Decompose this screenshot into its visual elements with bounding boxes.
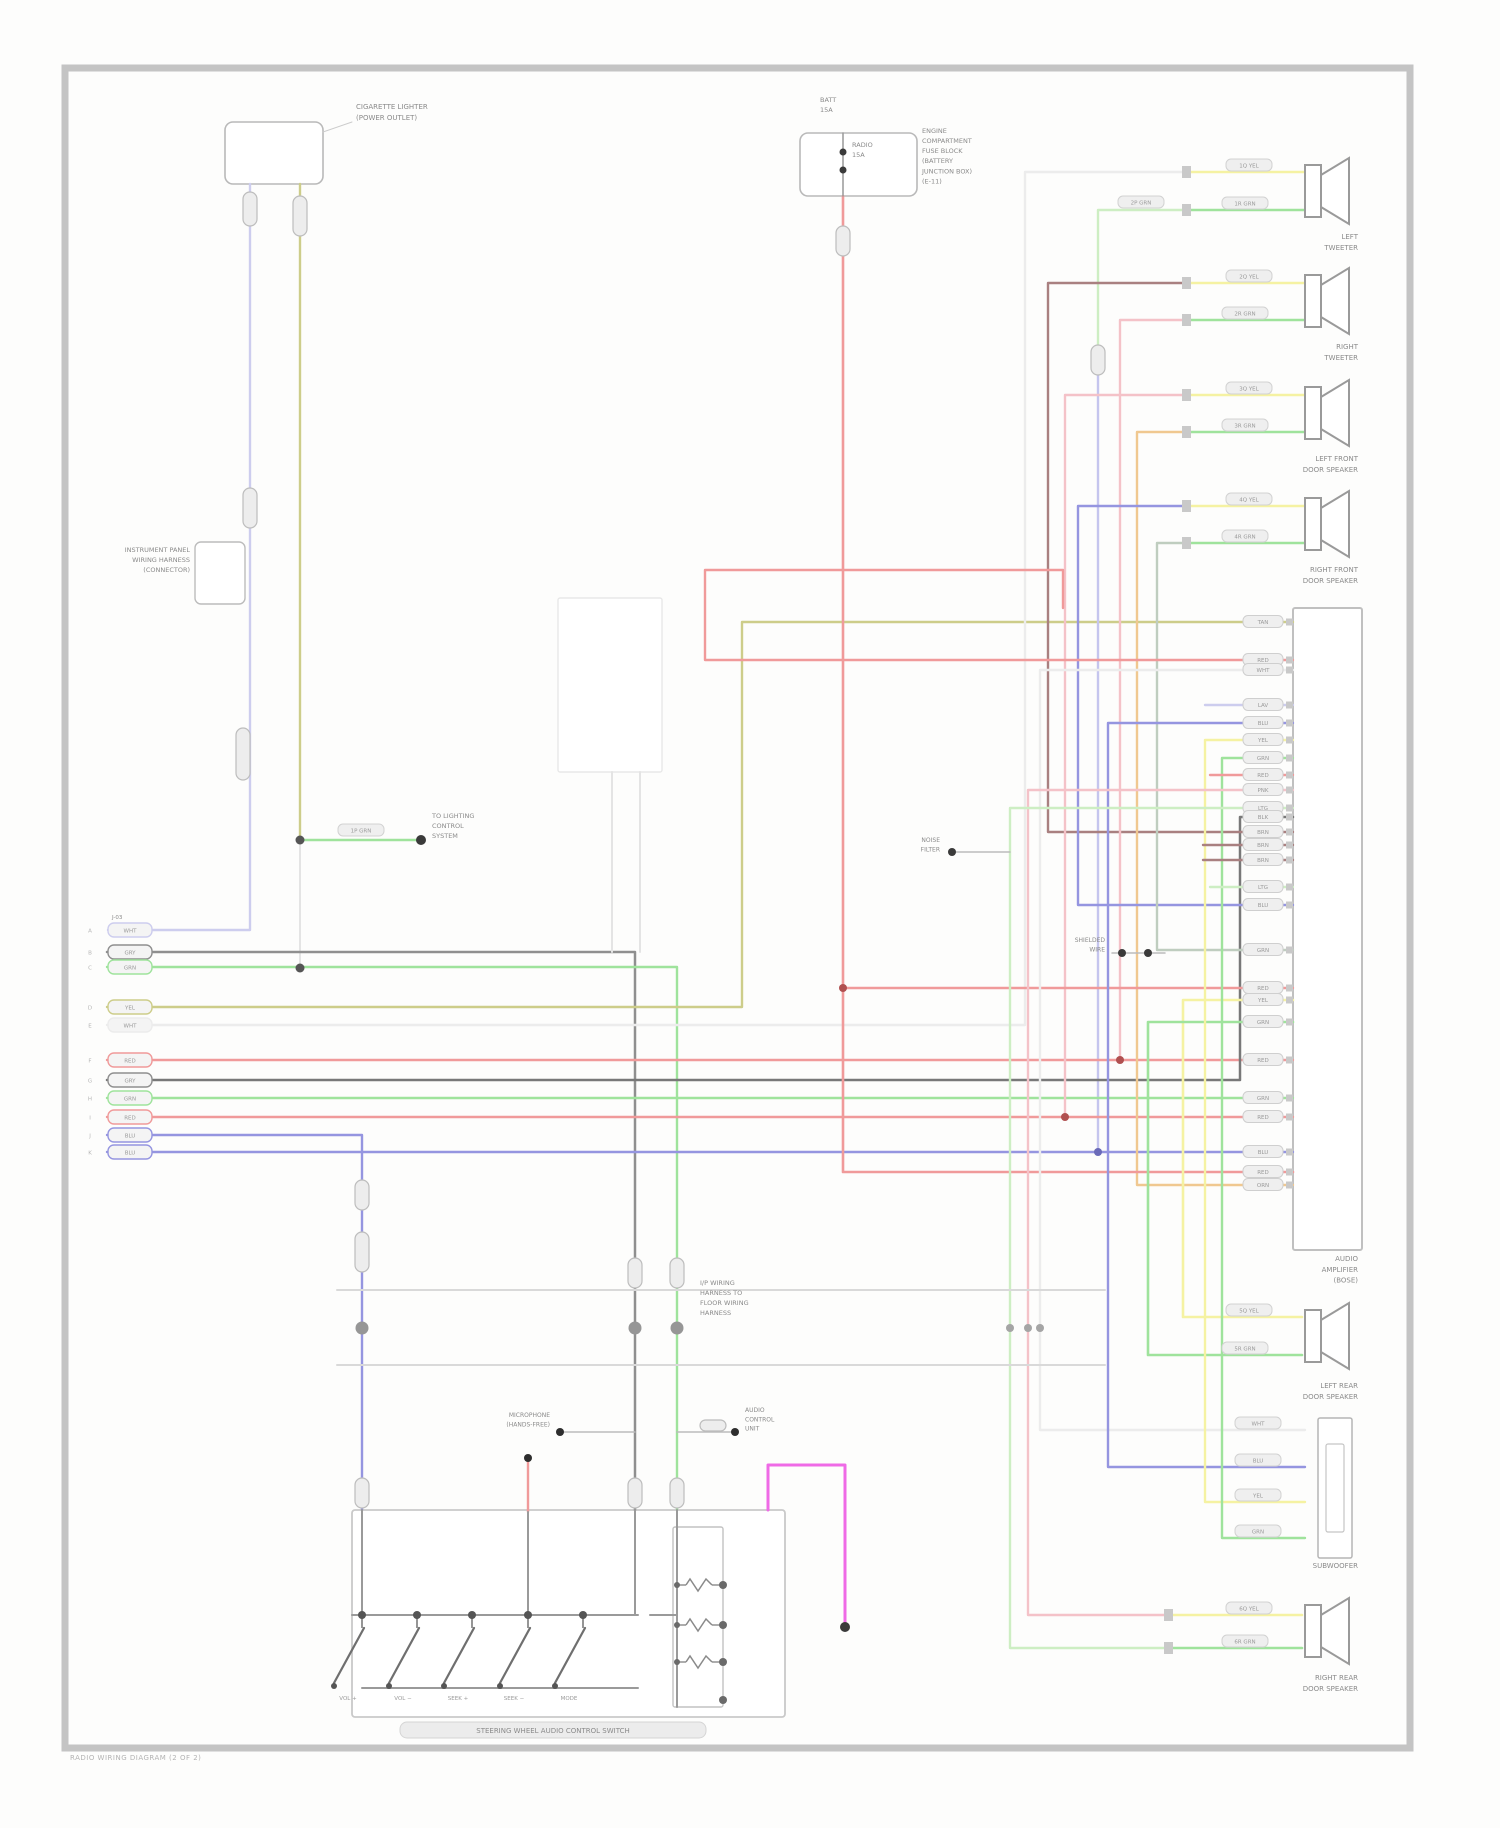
connector-stub-mark <box>1182 166 1191 178</box>
bus-stub-code: BLU <box>125 1151 136 1157</box>
connector-stub-mark <box>1182 389 1191 401</box>
wire-tag-code: RED <box>1257 773 1269 779</box>
junction-dot <box>1144 949 1152 957</box>
inline-connector-capsule <box>243 192 257 226</box>
switch-contact-dot <box>331 1683 337 1689</box>
inline-connector-capsule <box>1091 345 1105 375</box>
amp-pin <box>1286 842 1293 849</box>
box-caption-text: STEERING WHEEL AUDIO CONTROL SWITCH <box>476 1727 630 1735</box>
junction-dot <box>629 1322 642 1335</box>
inline-connector-capsule <box>628 1478 642 1508</box>
wire-tag-code: 2R GRN <box>1234 312 1255 318</box>
wire-tag-code: RED <box>1257 986 1269 992</box>
amp-pin <box>1286 1149 1293 1156</box>
inline-connector-capsule <box>670 1478 684 1508</box>
switch-contact-dot <box>579 1611 587 1619</box>
inline-connector-capsule <box>355 1478 369 1508</box>
resistor-node-dot <box>719 1581 727 1589</box>
amp-pin <box>1286 902 1293 909</box>
amp-pin <box>1286 997 1293 1004</box>
switch-contact-dot <box>468 1611 476 1619</box>
junction-dot <box>356 1322 369 1335</box>
lighting-system-label: TO LIGHTINGCONTROLSYSTEM <box>431 812 474 840</box>
junction-dot <box>524 1454 532 1462</box>
amp-pin <box>1286 619 1293 626</box>
amp-pin <box>1286 1182 1293 1189</box>
lf-door-speaker-icon <box>1305 387 1321 439</box>
left-tweeter-minus-feed <box>1098 210 1186 352</box>
switch-label: MODE <box>561 1696 578 1702</box>
resistor-node-dot <box>674 1659 680 1665</box>
switch-contact-dot <box>358 1611 366 1619</box>
bus-stub-code: GRY <box>124 1079 136 1085</box>
wire-tag-code: GRN <box>1257 1020 1269 1026</box>
resistor-node-dot <box>719 1658 727 1666</box>
junction-dot <box>839 984 847 992</box>
inline-connector-capsule <box>628 1258 642 1288</box>
fuse-top-label: BATT15A <box>820 96 836 114</box>
junction-dot <box>1006 1324 1014 1332</box>
harness-group-outline <box>558 598 662 772</box>
right-tweeter-horn-icon <box>1321 268 1349 334</box>
switch-contact-dot <box>497 1683 503 1689</box>
wire-tag-code: LAV <box>1258 703 1269 709</box>
page-footer: RADIO WIRING DIAGRAM (2 OF 2) <box>70 1754 201 1762</box>
junction-dot <box>1094 1148 1102 1156</box>
switch-label: VOL − <box>394 1696 412 1702</box>
rr-door-speaker-horn-icon <box>1321 1598 1349 1664</box>
wire-tag-code: 5R GRN <box>1234 1347 1255 1353</box>
bus-tick-label: D <box>88 1006 92 1012</box>
junction-dot <box>1061 1113 1069 1121</box>
amp-pin <box>1286 857 1293 864</box>
wire-tag-code: WHT <box>1252 1422 1266 1428</box>
bus-stub-code: WHT <box>124 929 138 935</box>
amp-pin <box>1286 884 1293 891</box>
wire-tag-code: 1Q YEL <box>1239 164 1259 170</box>
wire-tag-code: 2P GRN <box>1131 201 1152 207</box>
connector-stub-mark <box>1182 426 1191 438</box>
connector-stub-mark <box>1182 277 1191 289</box>
switch-label: VOL + <box>339 1696 357 1702</box>
bus-stub-code: YEL <box>124 1006 136 1012</box>
amp-pin <box>1286 772 1293 779</box>
switch-label: SEEK + <box>448 1696 469 1702</box>
resistor-pack-box <box>673 1527 723 1707</box>
junction-dot <box>840 167 847 174</box>
wire-tag-code: 1R GRN <box>1234 202 1255 208</box>
switch-contact-dot <box>413 1611 421 1619</box>
bus-green-to-switch <box>107 967 677 1510</box>
lf-door-plus-feed <box>1065 395 1186 1117</box>
bus-tick-label: K <box>88 1151 92 1157</box>
amp-pin <box>1286 814 1293 821</box>
bus-tick-label: F <box>88 1059 91 1065</box>
inline-connector-capsule <box>700 1420 726 1431</box>
rr-door-minus-feed <box>1010 808 1293 1648</box>
amp-pin <box>1286 829 1293 836</box>
bus-stub-code: BLU <box>125 1134 136 1140</box>
wire-tag-code: BRN <box>1257 858 1269 864</box>
junction-dot <box>731 1428 739 1436</box>
left-tweeter-label: LEFTTWEETER <box>1323 233 1358 252</box>
wire-tag-code: BLU <box>1258 1150 1269 1156</box>
rf-door-speaker-horn-icon <box>1321 491 1349 557</box>
right-tweeter-label: RIGHTTWEETER <box>1323 343 1358 362</box>
resistor-node-dot <box>719 1621 727 1629</box>
wire-tag-code: BRN <box>1257 830 1269 836</box>
connector-stub-mark <box>1164 1642 1173 1654</box>
wire-tag-code: ORN <box>1257 1183 1269 1189</box>
wire-tag-code: 1P GRN <box>351 829 372 835</box>
junction-dot <box>1024 1324 1032 1332</box>
amp-pin <box>1286 657 1293 664</box>
resistor-node-dot <box>674 1622 680 1628</box>
wire-tag-code: 5Q YEL <box>1239 1309 1259 1315</box>
amplifier-connector-block <box>1293 608 1362 1250</box>
junction-dot <box>840 149 847 156</box>
bus-tick-label: G <box>88 1079 92 1085</box>
wire-tag-code: BRN <box>1257 843 1269 849</box>
junction-dot <box>1036 1324 1044 1332</box>
red-top-loop <box>705 570 1293 660</box>
wire-tag-code: RED <box>1257 1170 1269 1176</box>
rf-door-speaker-label: RIGHT FRONTDOOR SPEAKER <box>1303 566 1359 585</box>
subwoofer-label: SUBWOOFER <box>1313 1562 1359 1570</box>
amp-pin <box>1286 947 1293 954</box>
junction-dot <box>948 848 956 856</box>
amp-pin <box>1286 755 1293 762</box>
wiring-diagram-page: WHTAGRYBGRNCYELDWHTEREDFGRYGGRNHREDIBLUJ… <box>0 0 1500 1828</box>
bus-blue-to-switch <box>107 1135 362 1510</box>
wire-tag-code: 6R GRN <box>1234 1640 1255 1646</box>
inline-connector-box <box>195 542 245 604</box>
inline-connector-label: INSTRUMENT PANELWIRING HARNESS(CONNECTOR… <box>125 546 191 574</box>
wire-tag-code: LTG <box>1258 885 1268 891</box>
switch-contact-dot <box>386 1683 392 1689</box>
lr-door-plus-loop <box>1183 1000 1302 1317</box>
lr-door-speaker-label: LEFT REARDOOR SPEAKER <box>1303 1382 1358 1401</box>
junction-dot <box>1118 949 1126 957</box>
bus-darkgray-to-amp <box>107 817 1293 1080</box>
bus-gray-to-switch <box>107 952 635 1510</box>
wire-tag-code: GRN <box>1257 756 1269 762</box>
switch-contact-dot <box>552 1683 558 1689</box>
shielded-wire-label: SHIELDEDWIRE <box>1075 937 1106 953</box>
bus-stub-code: RED <box>124 1116 136 1122</box>
bus-tick-label: E <box>88 1024 92 1030</box>
microphone-label: MICROPHONE(HANDS-FREE) <box>506 1412 550 1428</box>
inline-connector-capsule <box>293 196 307 236</box>
lr-door-speaker-horn-icon <box>1321 1303 1349 1369</box>
wire-tag-code: PNK <box>1257 788 1268 794</box>
noise-filter-label: NOISEFILTER <box>921 837 941 853</box>
bus-tick-label: B <box>88 951 92 957</box>
wire-tag-code: BLU <box>1258 721 1269 727</box>
bus-tick-label: I <box>89 1116 91 1122</box>
amp-pin <box>1286 720 1293 727</box>
wire-tag-code: 4Q YEL <box>1239 498 1259 504</box>
bus-olive-to-amp <box>107 622 1293 1007</box>
wiring-diagram-canvas: WHTAGRYBGRNCYELDWHTEREDFGRYGGRNHREDIBLUJ… <box>0 0 1500 1828</box>
lf-door-speaker-horn-icon <box>1321 380 1349 446</box>
resistor-node-dot <box>674 1582 680 1588</box>
amp-pin <box>1286 1114 1293 1121</box>
amp-pin <box>1286 1169 1293 1176</box>
connector-stub-mark <box>1164 1609 1173 1621</box>
junction-dot <box>1116 1056 1124 1064</box>
fuse-block-label: ENGINECOMPARTMENTFUSE BLOCK(BATTERYJUNCT… <box>921 127 972 185</box>
wire-tag-code: GRN <box>1252 1530 1264 1536</box>
power-outlet-box <box>225 122 323 184</box>
right-tweeter-icon <box>1305 275 1321 327</box>
audio-unit-label: AUDIOCONTROLUNIT <box>745 1407 775 1433</box>
junction-dot <box>296 836 305 845</box>
bus-tick-label: J <box>88 1134 91 1140</box>
amp-pin <box>1286 805 1293 812</box>
rr-door-speaker-label: RIGHT REARDOOR SPEAKER <box>1303 1674 1358 1693</box>
wire-tag-code: YEL <box>1252 1494 1264 1500</box>
connector-stub-mark <box>1182 537 1191 549</box>
amp-pin <box>1286 1019 1293 1026</box>
junction-dot <box>416 835 426 845</box>
wire-tag-code: 6Q YEL <box>1239 1607 1259 1613</box>
amp-pin <box>1286 667 1293 674</box>
switch-label: SEEK − <box>504 1696 525 1702</box>
lr-door-speaker-icon <box>1305 1310 1321 1362</box>
lf-door-speaker-label: LEFT FRONTDOOR SPEAKER <box>1303 455 1359 474</box>
bus-stub-code: GRY <box>124 951 136 957</box>
amp-pin <box>1286 702 1293 709</box>
wire-tag-code: TAN <box>1257 620 1269 626</box>
bus-stub-code: GRN <box>124 966 136 972</box>
left-tweeter-horn-icon <box>1321 158 1349 224</box>
junction-dot <box>296 964 305 973</box>
wire-tag-code: BLK <box>1258 815 1269 821</box>
connector-stub-mark <box>1182 500 1191 512</box>
inline-connector-capsule <box>355 1180 369 1210</box>
bus-stub-code: GRN <box>124 1097 136 1103</box>
amp-pin <box>1286 1057 1293 1064</box>
wire-tag-code: 4R GRN <box>1234 535 1255 541</box>
right-tweeter-plus-feed <box>1048 283 1293 832</box>
wire-tag-code: YEL <box>1257 738 1269 744</box>
amplifier-label: AUDIOAMPLIFIER(BOSE) <box>1322 1255 1359 1285</box>
label-leader-top-left <box>323 122 352 132</box>
wire-tag-code: 2Q YEL <box>1239 275 1259 281</box>
junction-dot <box>556 1428 564 1436</box>
rr-door-speaker-icon <box>1305 1605 1321 1657</box>
bus-stub-code: WHT <box>124 1024 138 1030</box>
bus-stub-code: RED <box>124 1059 136 1065</box>
amp-pin <box>1286 737 1293 744</box>
harness-junction-label: I/P WIRINGHARNESS TOFLOOR WIRINGHARNESS <box>700 1279 749 1317</box>
wire-tag-code: 3Q YEL <box>1239 387 1259 393</box>
inline-connector-capsule <box>236 728 250 780</box>
rf-door-speaker-icon <box>1305 498 1321 550</box>
wire-tag-code: WHT <box>1257 668 1271 674</box>
wire-tag-code: GRN <box>1257 1096 1269 1102</box>
junction-dot <box>840 1622 850 1632</box>
connector-stub-mark <box>1182 204 1191 216</box>
connector-ref-label: J-03 <box>111 915 123 921</box>
wire-tag-code: RED <box>1257 1115 1269 1121</box>
inline-connector-capsule <box>355 1232 369 1272</box>
amp-pin <box>1286 787 1293 794</box>
subwoofer-connector-inner <box>1326 1444 1344 1532</box>
power-outlet-label: CIGARETTE LIGHTER(POWER OUTLET) <box>356 103 428 122</box>
left-tweeter-icon <box>1305 165 1321 217</box>
connector-stub-mark <box>1182 314 1191 326</box>
wire-tag-code: RED <box>1257 1058 1269 1064</box>
wire-tag-code: YEL <box>1257 998 1269 1004</box>
switch-contact-dot <box>524 1611 532 1619</box>
junction-dot <box>671 1322 684 1335</box>
amp-pin <box>1286 985 1293 992</box>
resistor-node-dot <box>719 1696 727 1704</box>
inline-connector-capsule <box>836 226 850 256</box>
bus-tick-label: C <box>88 966 92 972</box>
amp-pin <box>1286 1095 1293 1102</box>
bus-tick-label: H <box>88 1097 92 1103</box>
inline-connector-capsule <box>670 1258 684 1288</box>
wire-tag-code: BLU <box>1258 903 1269 909</box>
wire-tag-code: BLU <box>1253 1459 1264 1465</box>
switch-contact-dot <box>441 1683 447 1689</box>
wire-tag-code: 3R GRN <box>1234 424 1255 430</box>
bus-tick-label: A <box>88 929 92 935</box>
inline-connector-capsule <box>243 488 257 528</box>
wire-tag-code: GRN <box>1257 948 1269 954</box>
